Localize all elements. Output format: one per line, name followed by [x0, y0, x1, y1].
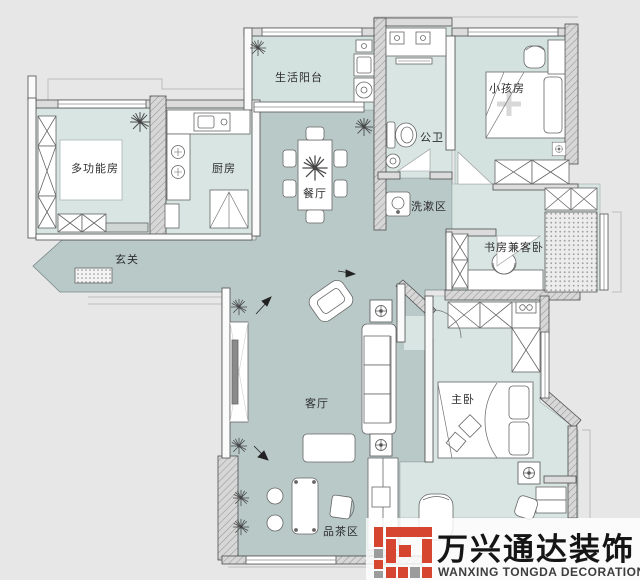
wall-study-left	[446, 232, 452, 290]
wall-tea-left	[218, 456, 238, 560]
plant-icon	[233, 519, 249, 535]
washing-machine-icon	[354, 78, 374, 102]
window-study	[600, 214, 608, 290]
doormat	[75, 268, 112, 283]
floor-plan-drawing: 多功能房 厨房 生活阳台 公卫 小孩房 洗漱区 书房兼客卧 玄关 餐厅 客厅 主…	[0, 0, 640, 580]
wall-bathroom-bottom-a	[378, 172, 400, 179]
room-label-living: 客厅	[305, 396, 329, 410]
room-label-kitchen: 厨房	[212, 162, 236, 175]
ceiling-fan-icon	[518, 462, 540, 484]
window-tea	[246, 556, 336, 564]
dining-chair	[306, 210, 324, 223]
plant-icon	[231, 299, 247, 315]
wall-multifunction-left	[28, 98, 36, 238]
plant-icon	[130, 112, 150, 132]
wall-kids-right	[565, 24, 578, 164]
room-label-tea: 品茶区	[323, 525, 359, 538]
watermark: 万兴通达装饰 WANXING TONGDA DECORATION	[366, 518, 640, 580]
wall-master-right-upper	[540, 296, 549, 334]
wall-multifunction-bottom	[36, 234, 252, 240]
plant-icon	[302, 155, 327, 180]
master-wardrobe-row	[448, 302, 540, 328]
room-label-study: 书房兼客卧	[484, 240, 544, 254]
wall-kitchen-right	[252, 100, 260, 236]
wall-master-left	[425, 296, 433, 462]
room-label-balcony: 生活阳台	[275, 70, 323, 84]
kids-chair	[524, 46, 545, 68]
wall-multifunction-kitchen	[150, 96, 166, 238]
laundry-sink	[354, 54, 374, 76]
study-wardrobe	[545, 188, 597, 210]
plant-icon	[250, 40, 266, 56]
room-label-master: 主卧	[451, 393, 475, 406]
room-label-multifunction: 多功能房	[71, 161, 119, 175]
kids-pillow	[544, 77, 562, 133]
master-pillow-1	[509, 386, 529, 419]
window-multifunction	[58, 100, 146, 108]
side-table	[370, 300, 392, 322]
master-wardrobe-tall	[512, 328, 540, 372]
wall-bathroom-left	[374, 18, 386, 230]
room-label-kids: 小孩房	[489, 82, 525, 95]
wall-bathroom-bottom-b	[430, 172, 452, 179]
ceiling-fan-icon	[552, 142, 566, 156]
tv-cabinet	[230, 322, 248, 422]
plant-icon	[231, 438, 247, 454]
faucet-box	[356, 40, 372, 52]
wall-kids-left	[446, 36, 455, 150]
wall-living-left	[222, 288, 230, 458]
wall-pillar-topleft	[28, 76, 36, 100]
watermark-title: 万兴通达装饰	[437, 532, 635, 567]
kitchen-counter-left	[167, 134, 190, 200]
window-balcony	[262, 28, 362, 36]
entry-furniture	[75, 268, 112, 283]
room-label-washing: 洗漱区	[411, 200, 447, 213]
bathroom-sink	[386, 154, 400, 168]
coffee-table	[303, 434, 355, 462]
dining-chair	[283, 150, 296, 167]
toilet-icon	[387, 122, 417, 148]
kids-desk	[548, 40, 565, 74]
tatami-bed	[545, 212, 597, 292]
fridge-icon	[210, 190, 248, 228]
master-pillow-2	[509, 422, 529, 455]
tea-stool	[267, 488, 283, 504]
tea-stool	[267, 515, 283, 531]
kitchen-sink	[194, 113, 230, 131]
room-label-entry: 玄关	[115, 252, 139, 266]
watermark-subtitle: WANXING TONGDA DECORATION	[438, 565, 640, 579]
side-table	[370, 434, 392, 456]
wall-sofa-partition	[397, 284, 405, 342]
dining-chair	[334, 150, 347, 167]
wardrobe-left	[38, 116, 56, 228]
wall-top-kitchen	[166, 100, 252, 108]
wall-balcony-left	[244, 28, 252, 110]
wall-master-right-lower	[568, 426, 577, 518]
plant-icon	[233, 490, 249, 506]
pass-through-counter	[254, 102, 364, 112]
master-vestibule-floor	[404, 316, 425, 350]
room-label-dining: 餐厅	[303, 186, 327, 200]
kids-wardrobe	[495, 160, 569, 184]
window-kids	[468, 28, 558, 36]
dining-chair	[283, 180, 296, 197]
washing-area-furniture	[386, 192, 410, 216]
room-label-bathroom: 公卫	[420, 132, 444, 144]
kitchen-cabinet-small	[165, 204, 179, 228]
window-master	[541, 332, 549, 398]
dining-chair	[306, 127, 324, 140]
wall-master-bottom-right	[544, 476, 576, 483]
study-cabinet-column	[452, 234, 468, 288]
plant-icon	[355, 118, 373, 136]
floor-plan-stage: 多功能房 厨房 生活阳台 公卫 小孩房 洗漱区 书房兼客卧 玄关 餐厅 客厅 主…	[0, 0, 640, 580]
tea-table	[292, 478, 318, 534]
washbasin	[386, 192, 410, 216]
shelf	[106, 223, 148, 232]
sofa	[362, 324, 396, 434]
tv-icon	[232, 340, 238, 404]
dining-chair	[334, 180, 347, 197]
